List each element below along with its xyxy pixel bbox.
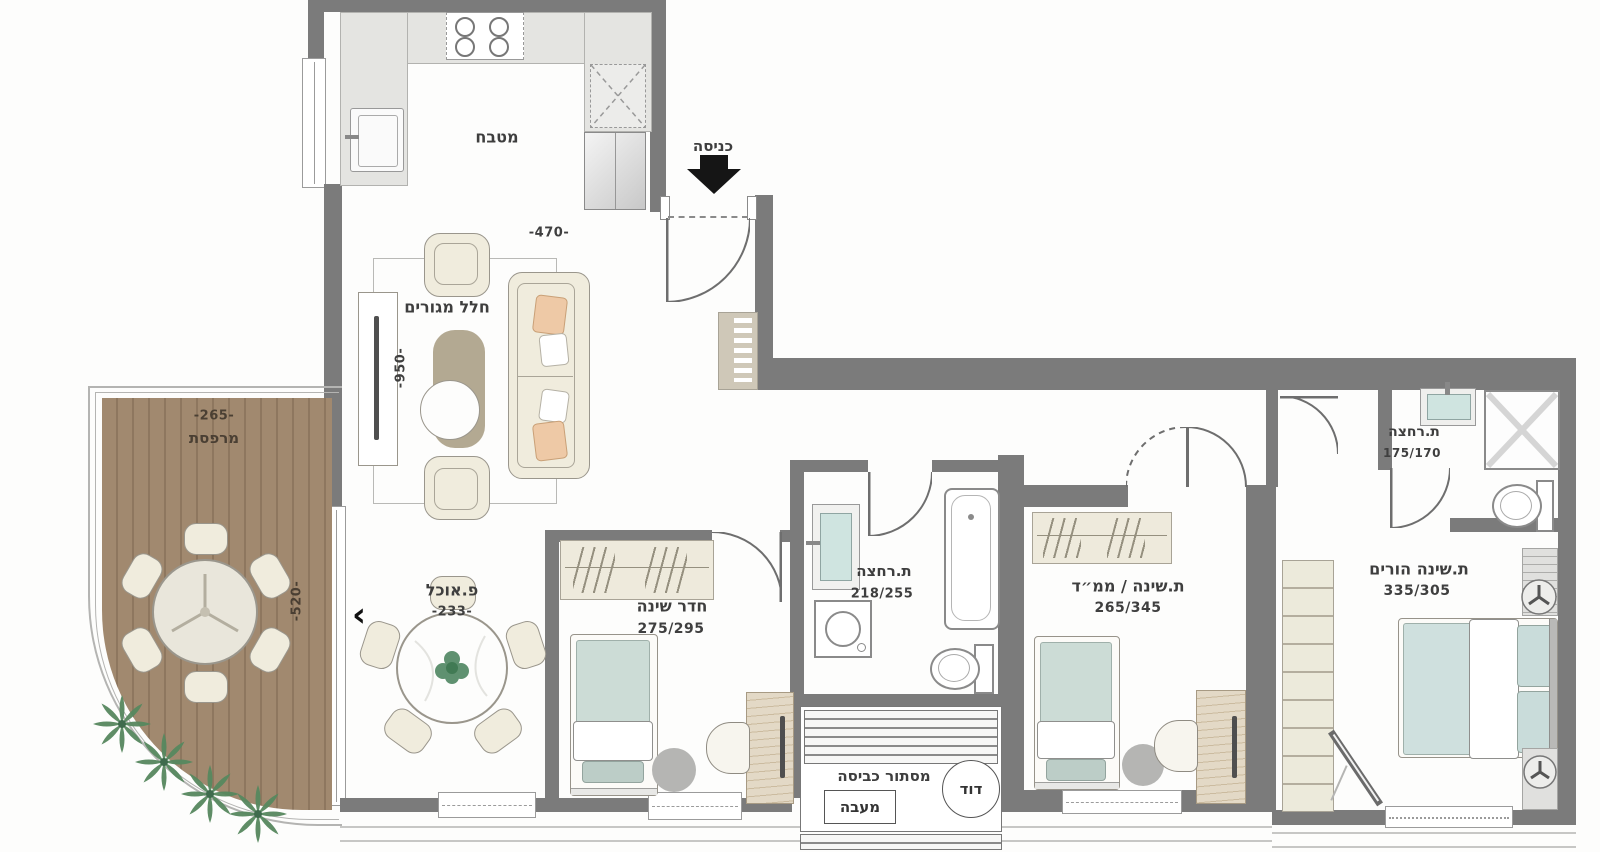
bed-mattress <box>1040 642 1112 724</box>
closet-hangers <box>1107 518 1145 558</box>
tv-icon <box>374 316 379 440</box>
washer-drum <box>825 611 861 647</box>
armchair <box>424 233 490 297</box>
ledge-line <box>1000 826 1272 828</box>
mamad-bed <box>1034 636 1120 790</box>
wall-kitchen-left-upper <box>308 0 324 60</box>
armchair-seat <box>434 243 478 285</box>
bed-base <box>1035 782 1119 789</box>
ledge-line <box>340 840 800 842</box>
plant-icon <box>226 782 290 850</box>
bed-pillow <box>1046 759 1106 781</box>
sofa-pillow <box>538 388 570 424</box>
bathroom-door <box>868 472 932 540</box>
bedroom1-chair <box>706 722 750 774</box>
shower <box>1484 390 1560 470</box>
laundry-louvers <box>804 710 998 764</box>
faucet-icon <box>1445 382 1450 395</box>
balcony-chair <box>184 671 228 703</box>
closet-hangers <box>645 547 687 593</box>
mamad-chair <box>1154 720 1198 772</box>
faucet-icon <box>345 135 359 139</box>
bedroom1-label: חדר שינה <box>637 597 708 616</box>
mamad-label: ת.שינה / ממ״ד <box>1072 577 1185 596</box>
entry-door-post <box>747 196 757 220</box>
toilet-bowl-inner <box>1500 491 1532 520</box>
ledge-line <box>1272 832 1576 834</box>
headboard <box>1549 619 1557 757</box>
mamad-desk <box>1196 690 1246 804</box>
decor-fan-icon <box>1520 578 1558 620</box>
dining-window <box>438 792 536 818</box>
pantry-x-icon <box>591 65 645 127</box>
kitchen-sink <box>350 108 404 172</box>
mamad-window <box>1062 790 1182 814</box>
ledge-line <box>1272 846 1576 848</box>
wall-bathroom-top-right <box>932 460 998 472</box>
ensuite-dim: 175/170 <box>1383 446 1441 460</box>
bathroom-label: ת.רחצה <box>856 562 911 580</box>
kitchen-dim: -470- <box>529 226 569 241</box>
vanity-sink <box>820 513 852 581</box>
bathroom-dim: 218/255 <box>851 587 914 602</box>
balcony-dim-h: -520- <box>290 581 305 621</box>
bathtub <box>944 488 1000 630</box>
slide-arrow: ‹ <box>352 598 366 632</box>
ensuite-door <box>1390 468 1450 532</box>
bathroom-vanity <box>812 504 860 590</box>
wall-corridor-top <box>755 358 1574 390</box>
bedroom1-window <box>648 792 742 820</box>
shower-x-icon <box>1486 392 1558 468</box>
stove <box>446 12 524 60</box>
kitchen-label: מטבח <box>475 128 518 147</box>
armchair <box>424 456 490 520</box>
wall-kitchen-top <box>308 0 664 12</box>
dining-dim: -233- <box>432 605 472 620</box>
closet-hangers <box>573 547 615 593</box>
parents-window <box>1385 806 1513 828</box>
bed-pillow <box>1517 691 1553 753</box>
kitchen-pantry <box>590 64 646 128</box>
ensuite-label: ת.רחצה <box>1388 424 1440 440</box>
laundry-label: מסתור כביסה <box>837 767 930 785</box>
bed-mattress <box>576 640 650 724</box>
wall-kitchen-right <box>650 0 666 212</box>
bedroom1-closet <box>560 540 714 600</box>
wall-mamad-right <box>1246 485 1276 812</box>
entry-cabinet-slats <box>734 318 752 382</box>
dining-label: פ.אוכל <box>426 581 478 600</box>
armchair-seat <box>434 468 478 510</box>
sofa-pillow <box>532 294 568 336</box>
laundry-louvers-bottom <box>800 834 1002 850</box>
fridge-door-divider <box>615 133 616 209</box>
parents-closet <box>1282 560 1334 812</box>
faucet-icon <box>806 541 820 545</box>
living-label: חלל מגורים <box>404 298 490 317</box>
living-dim: -950- <box>394 348 409 388</box>
dining-table <box>395 611 509 729</box>
mamad-closet <box>1032 512 1172 564</box>
wall-bedroom1-left <box>545 530 559 798</box>
entrance-arrow-stem <box>700 155 728 169</box>
ledge-line <box>1000 840 1272 842</box>
wall-hall-stub <box>1266 390 1278 487</box>
bedroom1-pouf <box>652 748 696 792</box>
entry-door <box>666 218 750 306</box>
mamad-dim: 265/345 <box>1094 600 1161 616</box>
condenser-label: מעבה <box>840 798 880 816</box>
wall-bathroom-top-left <box>804 460 868 472</box>
bed-base <box>571 788 657 795</box>
sofa-pillow <box>532 420 568 462</box>
balcony-table <box>150 557 260 671</box>
parents-bed <box>1398 618 1558 758</box>
balcony-label: מרפסת <box>189 429 239 447</box>
sink-basin <box>1427 394 1471 420</box>
burner-icon <box>455 37 475 57</box>
parents-hall-door <box>1280 396 1338 458</box>
boiler-circle: דוד <box>942 760 1000 818</box>
bedroom1-door <box>712 532 782 606</box>
washing-machine <box>814 600 872 658</box>
bed-blanket <box>1037 721 1115 759</box>
bed-blanket <box>1469 619 1519 759</box>
toilet-bowl-inner <box>938 654 970 682</box>
balcony-chair <box>184 523 228 555</box>
bedroom1-monitor <box>780 716 785 778</box>
mamad-door-arc-dashed <box>1126 427 1188 493</box>
ensuite-sink <box>1420 388 1476 426</box>
dining-chair <box>503 618 550 672</box>
closet-hangers <box>1043 518 1081 558</box>
wall-mamad-top <box>998 485 1128 507</box>
kitchen-window <box>302 58 326 188</box>
condenser-box: מעבה <box>824 790 896 824</box>
floor-plan: כניסה מטבח -470- <box>0 0 1600 852</box>
parents-label: ת.שינה הורים <box>1369 560 1469 579</box>
burner-icon <box>489 37 509 57</box>
washer-knob <box>857 643 866 652</box>
mamad-door-arc-solid <box>1186 427 1248 493</box>
parents-dim: 335/305 <box>1383 583 1450 599</box>
entrance-arrow-head <box>687 169 741 194</box>
entrance-label: כניסה <box>693 137 733 155</box>
bed-pillow <box>1517 625 1553 687</box>
mamad-monitor <box>1232 716 1237 778</box>
burner-icon <box>489 17 509 37</box>
standing-mirror <box>1328 730 1383 807</box>
sink-basin <box>358 115 398 167</box>
boiler-label: דוד <box>960 780 983 798</box>
bed-pillow <box>582 761 644 783</box>
tub-drain <box>968 514 974 520</box>
bed-blanket <box>573 721 653 761</box>
bedroom1-desk <box>746 692 794 804</box>
balcony-dim-w: -265- <box>194 409 234 424</box>
decor-fan-icon <box>1522 754 1558 794</box>
bedroom1-bed <box>570 634 658 796</box>
fridge <box>584 132 646 210</box>
ledge-line <box>340 826 800 828</box>
sofa-divider <box>517 376 573 377</box>
sofa-pillow <box>538 333 569 368</box>
mirror-glass <box>1332 734 1378 801</box>
burner-icon <box>455 17 475 37</box>
wall-right-outer <box>1558 358 1576 825</box>
coffee-table <box>420 380 480 440</box>
wall-bathroom-bottom <box>804 694 998 706</box>
